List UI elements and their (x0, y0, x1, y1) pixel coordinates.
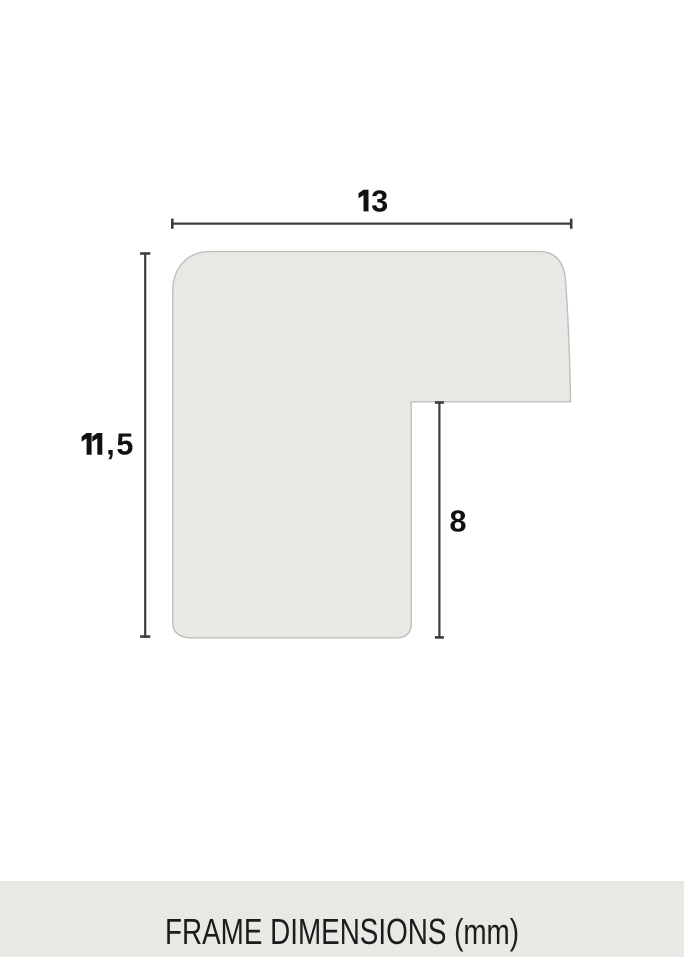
svg-text:5: 5 (116, 428, 133, 462)
svg-text:8: 8 (450, 504, 467, 538)
svg-text:FRAME DIMENSIONS (mm): FRAME DIMENSIONS (mm) (165, 911, 519, 952)
svg-text:3: 3 (371, 184, 388, 218)
svg-text:,: , (106, 428, 114, 462)
